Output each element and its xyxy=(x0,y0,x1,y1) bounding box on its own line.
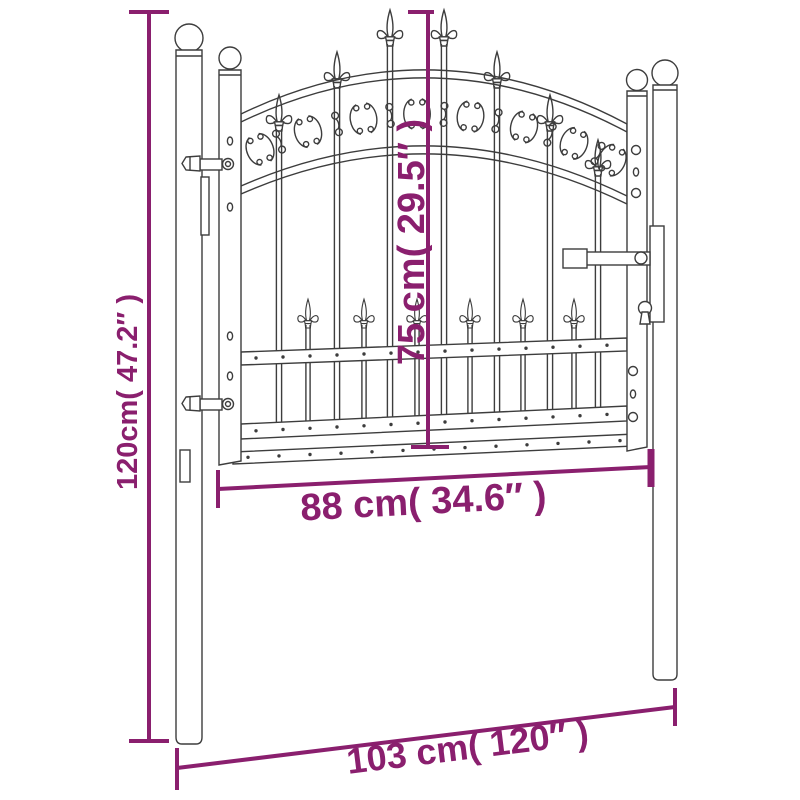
arch-band xyxy=(241,70,627,204)
gate-diagram-svg: 120cm( 47.2″ ) 75 cm( 29.5″ ) 88 cm( 34.… xyxy=(0,0,800,800)
total-height-label: 120cm( 47.2″ ) xyxy=(112,294,144,490)
hinge-bottom xyxy=(182,396,234,411)
gate-dimension-diagram: 120cm( 47.2″ ) 75 cm( 29.5″ ) 88 cm( 34.… xyxy=(0,0,800,800)
right-post xyxy=(652,60,678,680)
left-post xyxy=(175,24,203,744)
mid-rail xyxy=(241,338,627,365)
dim-total-width: 103 cm( 120″ ) xyxy=(177,688,675,790)
dim-total-height: 120cm( 47.2″ ) xyxy=(112,12,169,741)
handle-lock xyxy=(563,226,664,324)
scrollwork xyxy=(242,99,631,180)
bottom-rail xyxy=(241,406,627,439)
gate-height-label: 75 cm( 29.5″ ) xyxy=(391,119,433,365)
total-width-label: 103 cm( 120″ ) xyxy=(344,711,591,781)
